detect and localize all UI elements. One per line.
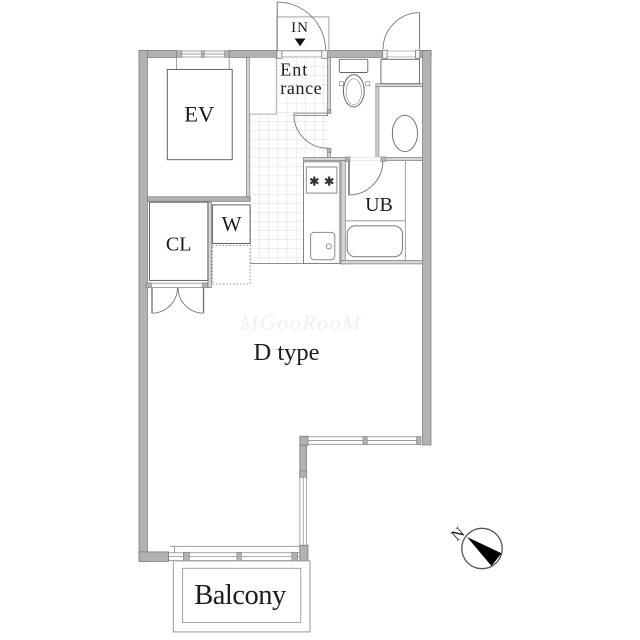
svg-text:EV: EV bbox=[184, 102, 214, 127]
svg-text:CL: CL bbox=[166, 234, 192, 256]
svg-text:UB: UB bbox=[365, 194, 393, 216]
svg-text:IN: IN bbox=[291, 20, 309, 36]
svg-text:Balcony: Balcony bbox=[194, 580, 287, 611]
svg-text:W: W bbox=[222, 212, 242, 236]
svg-text:MGooRooM: MGooRooM bbox=[239, 310, 362, 335]
svg-text:rance: rance bbox=[280, 78, 322, 98]
svg-text:D type: D type bbox=[254, 339, 320, 366]
svg-text:Ent: Ent bbox=[280, 60, 308, 80]
